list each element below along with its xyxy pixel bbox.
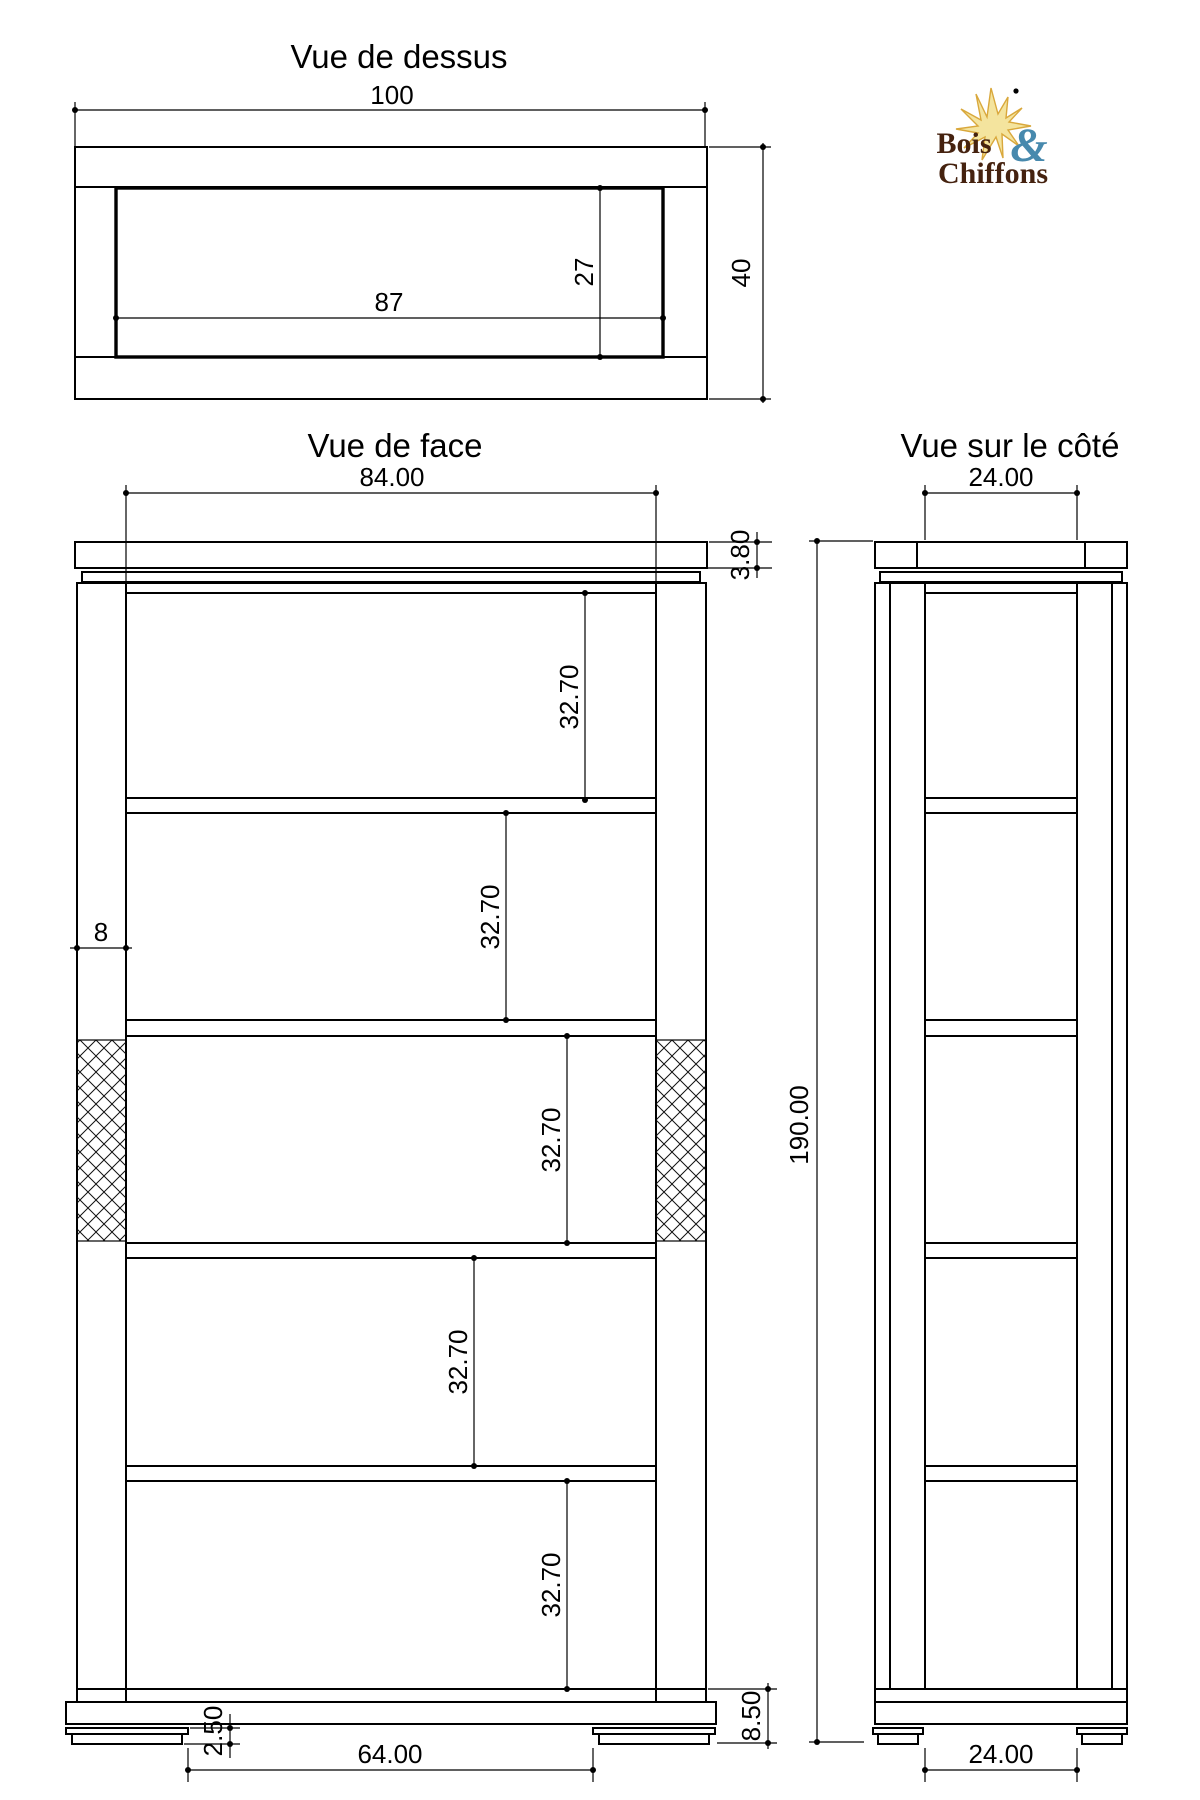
dim-front-opening-2-label: 32.70 xyxy=(475,884,505,949)
dim-front-base-height: 8.50 xyxy=(708,1683,777,1749)
front-carcass-structure xyxy=(77,583,706,1702)
front-right-foot-block xyxy=(599,1734,709,1744)
dim-front-board-thickness: 3.80 xyxy=(702,530,772,581)
side-shelves xyxy=(925,798,1077,1481)
dim-top-inner-width-87: 87 xyxy=(113,287,666,321)
dim-front-opening-5: 32.70 xyxy=(536,1478,570,1692)
dim-front-feet-span: 64.00 xyxy=(185,1739,596,1782)
dim-total-height-190: 190.00 xyxy=(784,538,873,1745)
dim-front-opening-2: 32.70 xyxy=(475,810,509,1023)
dim-front-foot-height-label: 2.50 xyxy=(198,1706,228,1757)
side-carcass-structure xyxy=(875,583,1127,1702)
front-view: Vue de face 84.00 xyxy=(66,427,777,1782)
top-view-board-outline xyxy=(75,147,707,399)
side-plinth xyxy=(875,1702,1127,1724)
dim-front-opening-3-label: 32.70 xyxy=(536,1107,566,1172)
dim-front-opening-5-label: 32.70 xyxy=(536,1552,566,1617)
side-top-molding xyxy=(880,572,1122,582)
dim-top-depth-label: 40 xyxy=(726,259,756,288)
dim-front-opening-3: 32.70 xyxy=(536,1033,570,1246)
front-view-title: Vue de face xyxy=(308,427,483,464)
dim-front-opening-4-label: 32.70 xyxy=(443,1329,473,1394)
front-left-foot-block xyxy=(72,1734,182,1744)
side-right-foot-block xyxy=(1082,1734,1122,1744)
top-view: Vue de dessus 100 87 27 xyxy=(72,38,771,403)
side-view-title: Vue sur le côté xyxy=(901,427,1120,464)
dim-top-width-100: 100 xyxy=(72,80,708,146)
front-top-molding xyxy=(82,572,700,582)
front-shelves xyxy=(126,798,656,1481)
dim-front-feet-span-label: 64.00 xyxy=(357,1739,422,1769)
front-right-hatched-panel xyxy=(656,1040,706,1241)
dim-front-post-width-8: 8 xyxy=(70,917,132,951)
logo-accent-dot xyxy=(1013,88,1018,93)
dim-front-post-width-label: 8 xyxy=(94,917,108,947)
top-view-title: Vue de dessus xyxy=(290,38,507,75)
drawing-canvas: Bois & Chiffons Vue de dessus 100 87 xyxy=(0,0,1200,1800)
dim-total-height-label: 190.00 xyxy=(784,1085,814,1165)
dim-top-width-label: 100 xyxy=(370,80,413,110)
front-top-board xyxy=(75,542,707,568)
front-left-hatched-panel xyxy=(77,1040,126,1241)
side-view: Vue sur le côté 24.00 xyxy=(873,427,1127,1782)
dim-front-foot-height: 2.50 xyxy=(184,1706,240,1758)
dim-front-opening-1: 32.70 xyxy=(554,590,588,803)
dim-side-width-bottom-label: 24.00 xyxy=(968,1739,1033,1769)
dim-front-base-height-label: 8.50 xyxy=(736,1691,766,1742)
dim-side-width-top: 24.00 xyxy=(922,462,1080,540)
logo-word-chiffons: Chiffons xyxy=(938,157,1048,190)
side-base-structure xyxy=(873,1689,1127,1744)
dim-front-opening-1-label: 32.70 xyxy=(554,664,584,729)
dim-side-width-bottom: 24.00 xyxy=(922,1739,1080,1782)
dim-front-opening-4: 32.70 xyxy=(443,1255,477,1469)
dim-top-inner-depth-label: 27 xyxy=(569,258,599,287)
dim-side-width-top-label: 24.00 xyxy=(968,462,1033,492)
front-plinth xyxy=(66,1702,716,1724)
logo-word-bois: Bois xyxy=(936,127,991,160)
side-left-foot-block xyxy=(878,1734,918,1744)
dim-top-inner-depth-27: 27 xyxy=(569,185,603,360)
dim-top-inner-width-label: 87 xyxy=(375,287,404,317)
front-base-structure xyxy=(66,1689,716,1744)
side-top-board xyxy=(875,542,1127,568)
dim-front-width-84: 84.00 xyxy=(123,462,659,594)
logo-bois-et-chiffons: Bois & Chiffons xyxy=(936,88,1048,190)
dim-front-board-thickness-label: 3.80 xyxy=(725,530,755,581)
dim-top-depth-40: 40 xyxy=(709,143,771,403)
technical-drawing-page: Bois & Chiffons Vue de dessus 100 87 xyxy=(0,0,1200,1800)
dim-front-width-label: 84.00 xyxy=(359,462,424,492)
